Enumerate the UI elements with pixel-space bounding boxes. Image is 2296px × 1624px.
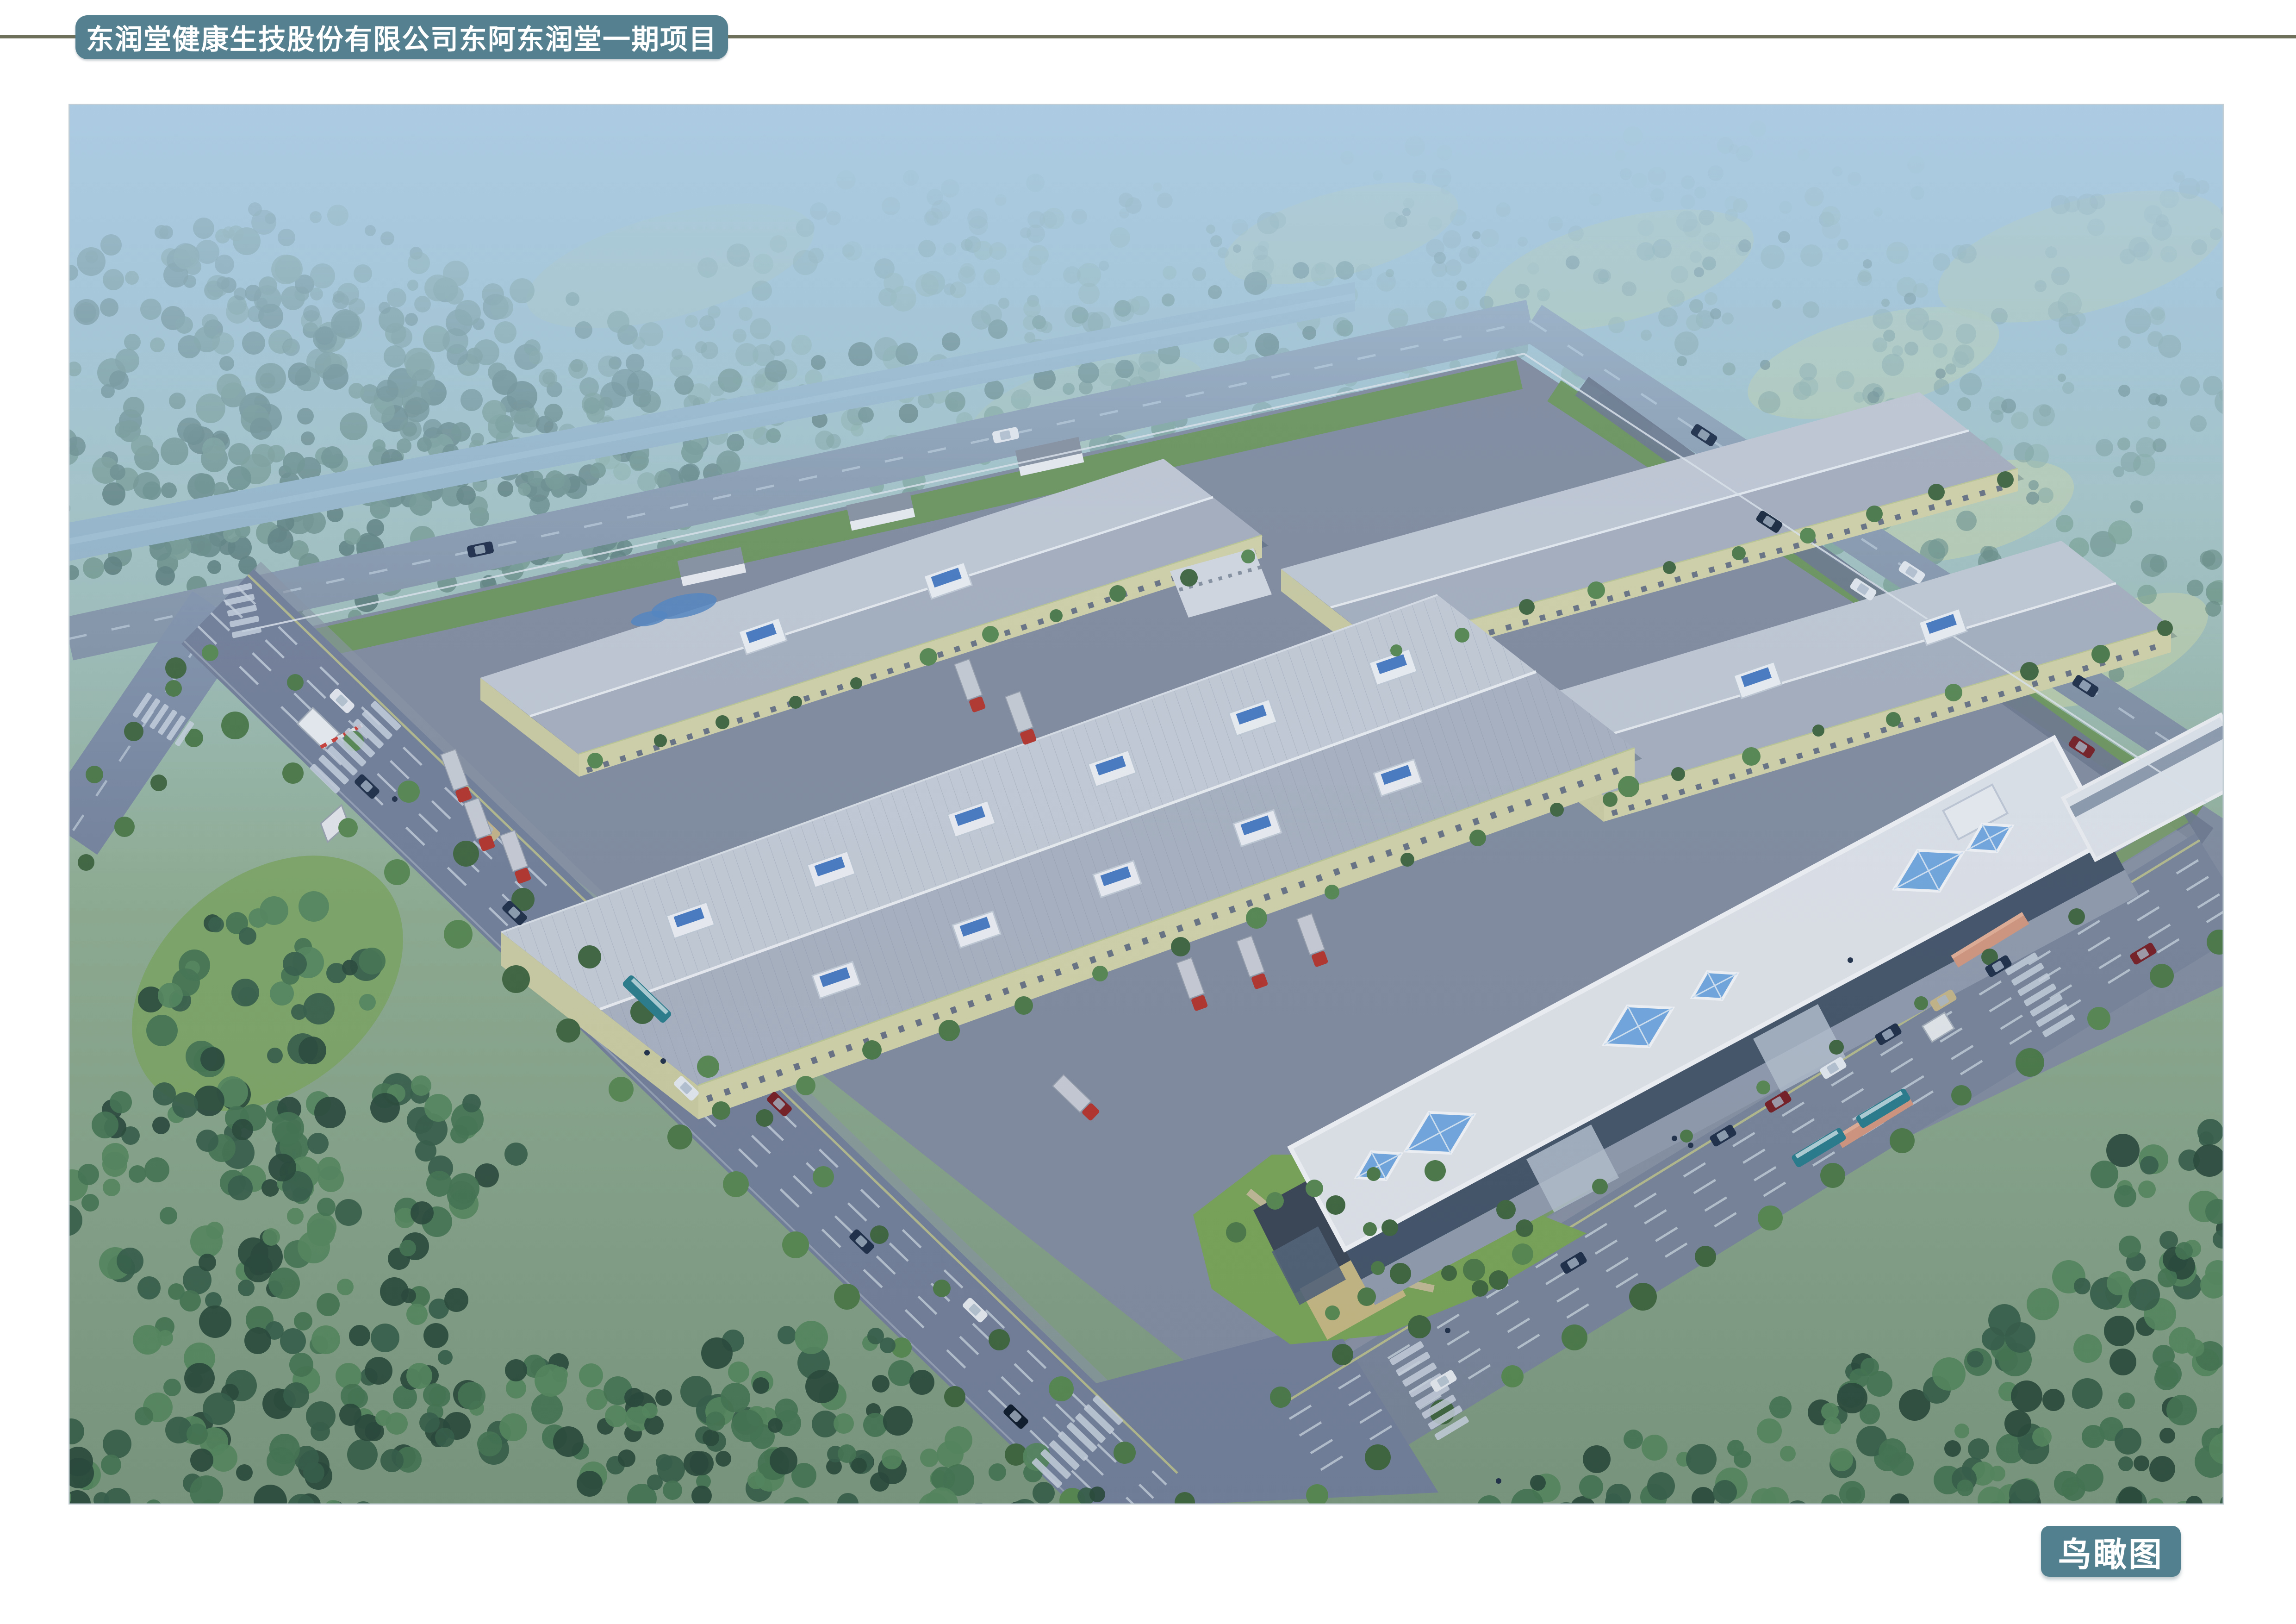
view-label-text: 鸟瞰图 bbox=[2058, 1527, 2164, 1576]
aerial-render bbox=[68, 104, 2224, 1505]
project-title-text: 东润堂健康生技股份有限公司东阿东润堂一期项目 bbox=[86, 17, 717, 57]
aerial-render-frame bbox=[68, 104, 2224, 1505]
project-title-badge: 东润堂健康生技股份有限公司东阿东润堂一期项目 bbox=[75, 15, 728, 59]
view-label-badge: 鸟瞰图 bbox=[2041, 1526, 2181, 1577]
page: { "header": { "title": "东润堂健康生技股份有限公司东阿东… bbox=[0, 0, 2296, 1624]
color-grade-overlay bbox=[68, 104, 2224, 1505]
